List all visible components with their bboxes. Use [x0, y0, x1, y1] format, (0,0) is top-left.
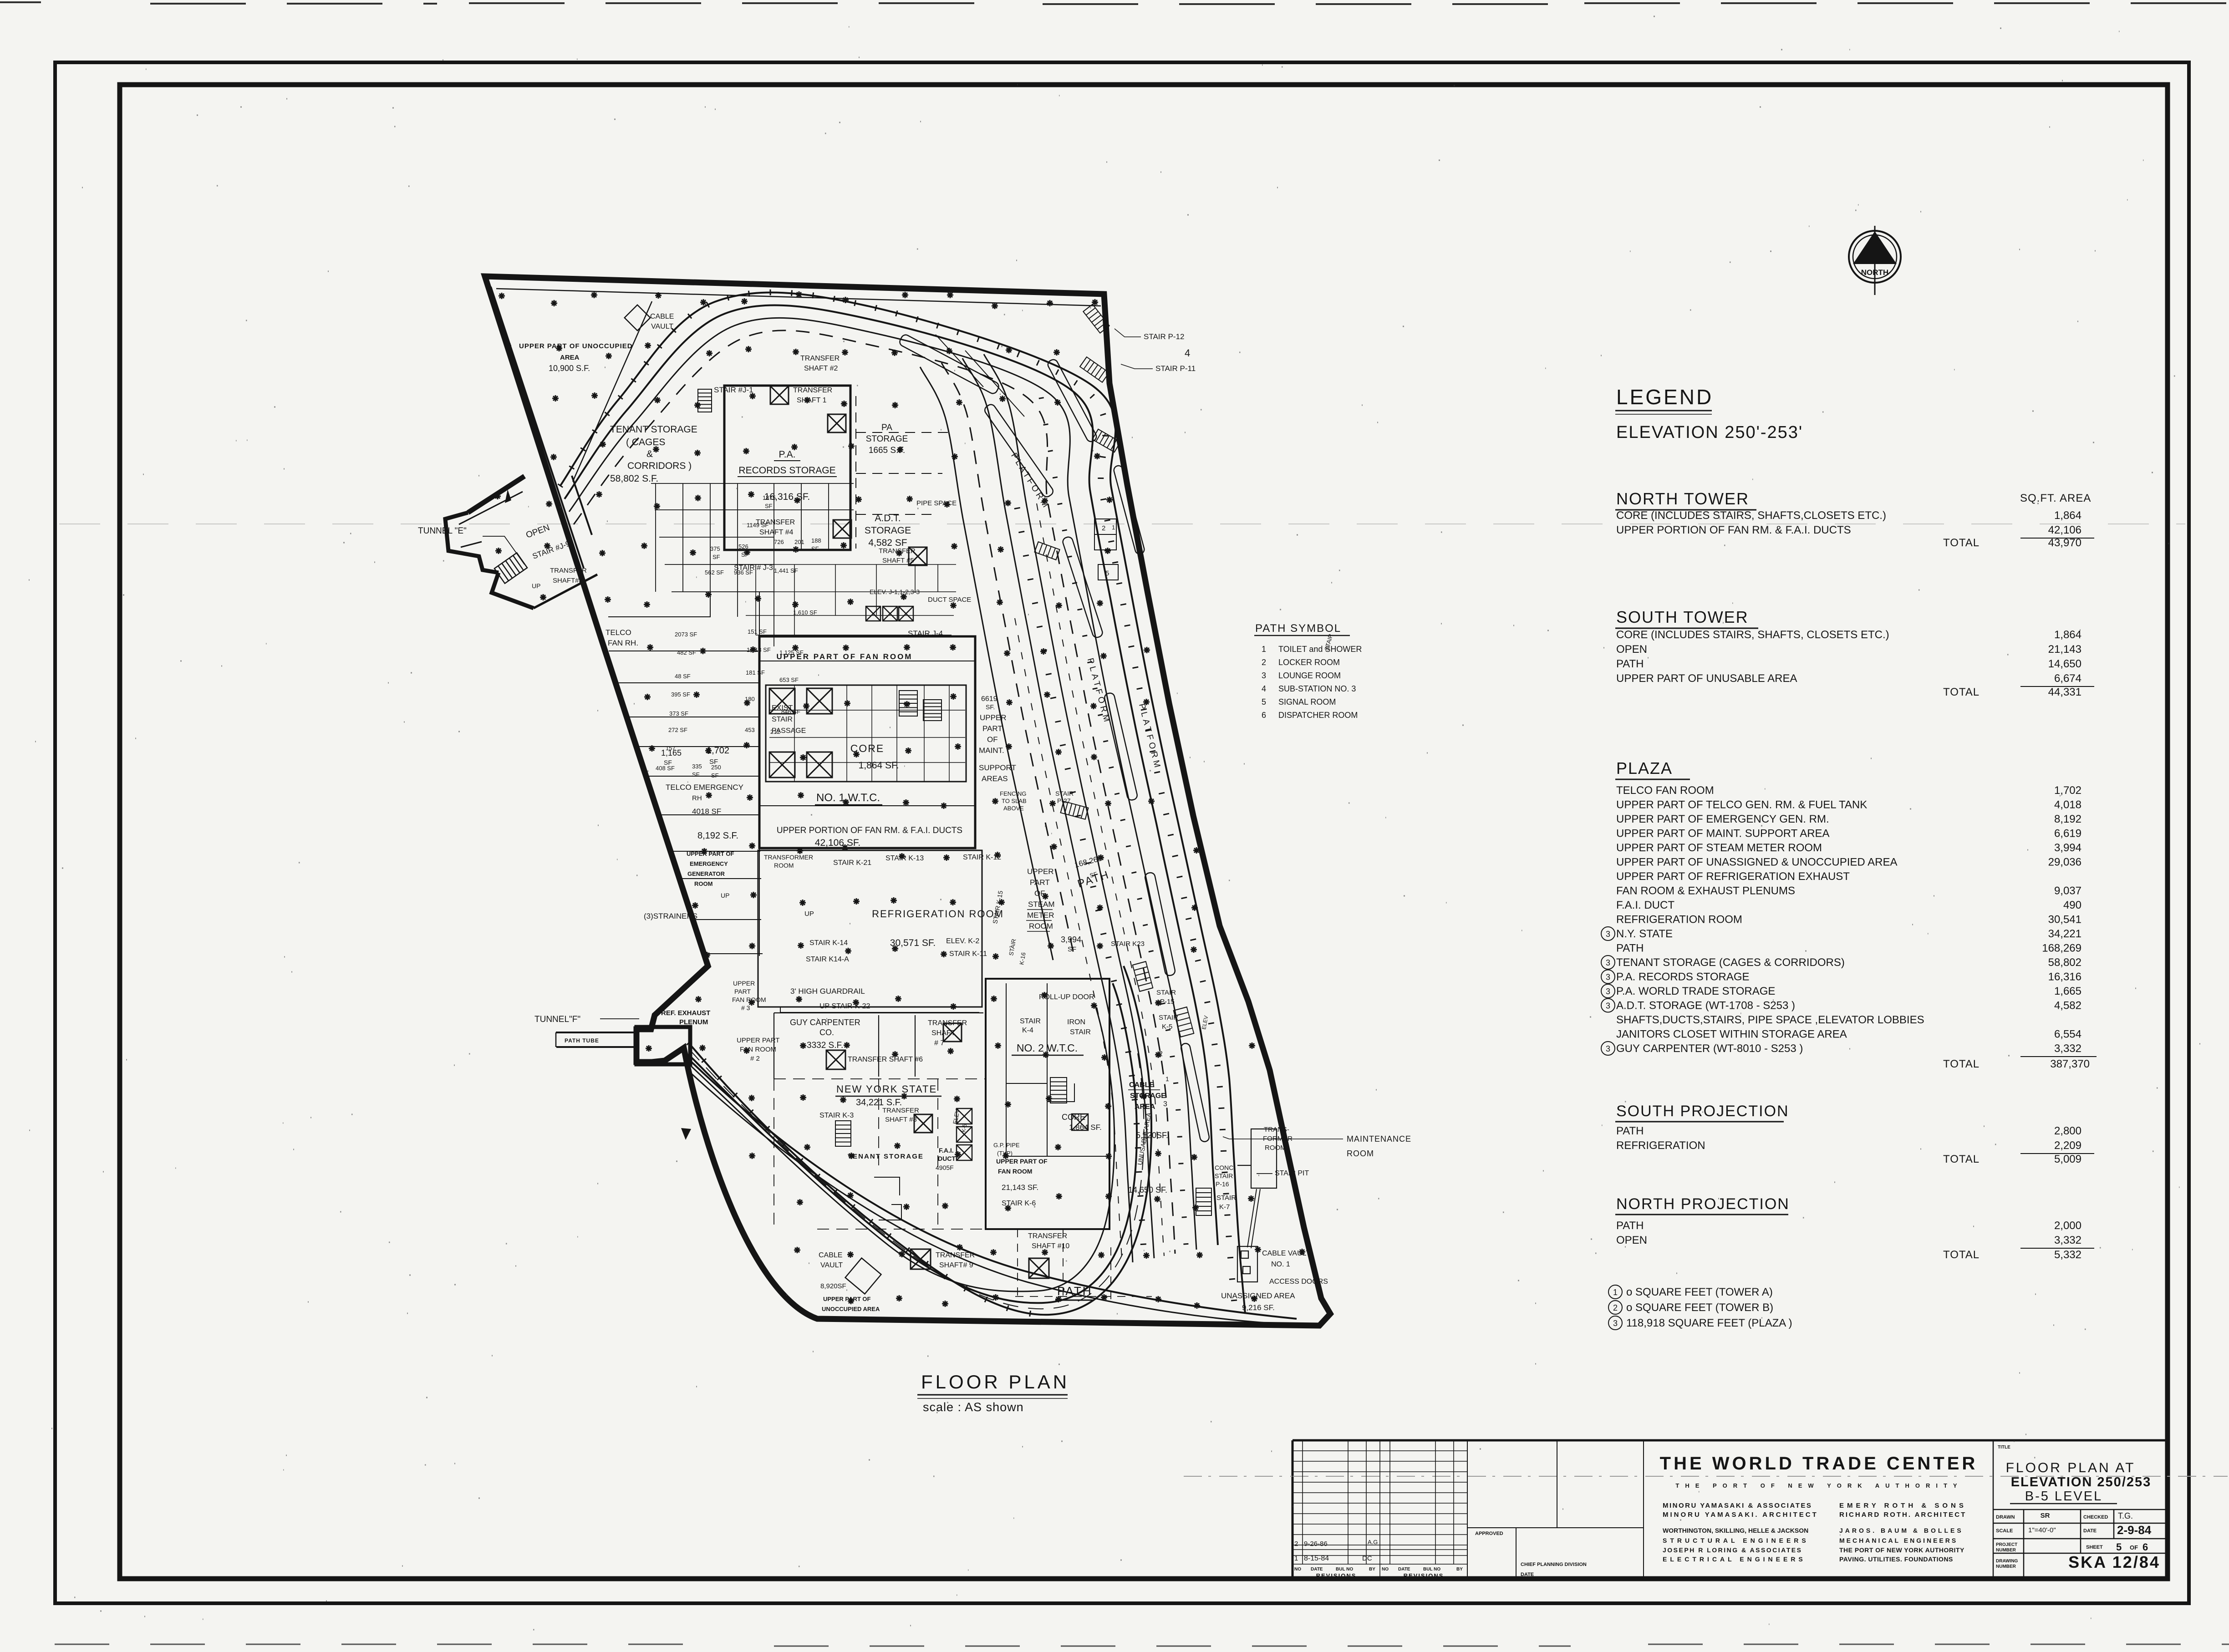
svg-text:MINORU YAMASAKI & ASSOCIATES: MINORU YAMASAKI & ASSOCIATES [1663, 1502, 1812, 1510]
svg-text:LEGEND: LEGEND [1616, 385, 1713, 409]
svg-text:THE WORLD TRADE CENTER: THE WORLD TRADE CENTER [1660, 1454, 1978, 1474]
svg-text:21,143: 21,143 [2048, 643, 2081, 656]
svg-text:726: 726 [774, 539, 784, 545]
svg-text:FAN RH.: FAN RH. [608, 639, 638, 647]
svg-text:K-4: K-4 [1022, 1027, 1033, 1034]
svg-text:TO SLAB: TO SLAB [1002, 798, 1027, 804]
svg-text:A.D.T.: A.D.T. [875, 513, 901, 524]
svg-text:1: 1 [1262, 645, 1266, 654]
svg-text:375: 375 [710, 545, 720, 552]
svg-text:PART: PART [734, 988, 751, 995]
svg-text:UPPER PART OF: UPPER PART OF [996, 1158, 1048, 1165]
svg-text:1: 1 [1613, 1288, 1618, 1297]
svg-text:118,918 SQUARE FEET (PLAZA: 118,918 SQUARE FEET (PLAZA ) [1626, 1317, 1792, 1329]
svg-text:6: 6 [1262, 711, 1266, 720]
svg-text:TENANT STORAGE: TENANT STORAGE [610, 424, 697, 435]
svg-text:3' HIGH GUARDRAIL: 3' HIGH GUARDRAIL [790, 987, 865, 996]
svg-text:K-5: K-5 [1162, 1023, 1172, 1031]
svg-text:1,702: 1,702 [2054, 784, 2081, 797]
svg-text:3: 3 [1613, 1319, 1618, 1328]
svg-text:SF: SF [1068, 945, 1076, 953]
svg-text:250: 250 [711, 764, 721, 771]
svg-text:10,900 S.F.: 10,900 S.F. [549, 364, 590, 373]
svg-text:SF: SF [711, 772, 719, 779]
svg-text:ABOVE: ABOVE [1003, 805, 1024, 812]
svg-text:8,192 S.F.: 8,192 S.F. [697, 831, 738, 841]
svg-text:N.Y. STATE: N.Y. STATE [1616, 928, 1673, 940]
svg-text:NORTH PROJECTION: NORTH PROJECTION [1616, 1195, 1790, 1213]
svg-text:1: 1 [1165, 1075, 1169, 1083]
svg-text:DATE: DATE [1398, 1567, 1410, 1572]
svg-text:SHAFT#3: SHAFT#3 [553, 577, 583, 585]
svg-text:&: & [646, 449, 653, 459]
svg-text:REVISIONS: REVISIONS [1316, 1572, 1357, 1579]
svg-text:SF: SF [811, 545, 819, 552]
svg-text:P-27: P-27 [1057, 797, 1071, 804]
svg-text:# 3: # 3 [741, 1004, 750, 1012]
svg-text:ROOM: ROOM [774, 862, 794, 869]
svg-text:14,650: 14,650 [2048, 658, 2081, 670]
svg-text:TOTAL: TOTAL [1943, 1058, 1980, 1070]
svg-text:MAINTENANCE: MAINTENANCE [1347, 1134, 1411, 1144]
svg-text:P.A. WORLD TRADE STORAGE: P.A. WORLD TRADE STORAGE [1616, 985, 1775, 997]
svg-text:STAIR: STAIR [1215, 1172, 1233, 1179]
svg-text:6,619: 6,619 [2054, 828, 2081, 840]
svg-text:METER: METER [1027, 911, 1054, 920]
svg-text:PROJECT: PROJECT [1996, 1542, 2017, 1547]
svg-text:RH: RH [692, 794, 702, 802]
svg-text:3: 3 [1606, 1044, 1610, 1053]
svg-text:CO.: CO. [819, 1028, 834, 1037]
svg-text:STAIR: STAIR [1008, 938, 1017, 956]
svg-text:4018 SF: 4018 SF [692, 807, 721, 816]
svg-text:NO: NO [1294, 1567, 1301, 1572]
svg-text:PATH: PATH [1616, 658, 1644, 670]
svg-text:AREA: AREA [1135, 1103, 1155, 1111]
svg-text:SHAFT #10: SHAFT #10 [1032, 1242, 1069, 1250]
svg-text:NEW YORK STATE: NEW YORK STATE [836, 1083, 937, 1095]
svg-text:8-15-84: 8-15-84 [1304, 1555, 1329, 1562]
svg-text:T.G.: T.G. [2118, 1511, 2133, 1520]
svg-text:ROOM: ROOM [694, 880, 712, 887]
svg-text:UPPER PORTION OF FAN RM. & F.A: UPPER PORTION OF FAN RM. & F.A.I. DUCTS [777, 826, 962, 835]
svg-text:5,332: 5,332 [2054, 1249, 2081, 1261]
svg-text:PATH: PATH [1057, 1284, 1092, 1298]
svg-text:MAINT.: MAINT. [979, 746, 1004, 755]
svg-text:PATH: PATH [1616, 1125, 1644, 1137]
svg-text:SHAFT #8: SHAFT #8 [885, 1116, 917, 1123]
svg-text:21,143 SF.: 21,143 SF. [1002, 1183, 1038, 1192]
svg-text:4,582 SF: 4,582 SF [868, 538, 907, 548]
svg-text:UPPER PART OF TELCO GEN.: UPPER PART OF TELCO GEN. RM. & FUEL TANK [1616, 799, 1867, 811]
svg-text:BY: BY [1456, 1567, 1463, 1572]
svg-text:PIPE SPACE: PIPE SPACE [916, 499, 957, 507]
svg-text:SQ.FT. AREA: SQ.FT. AREA [2020, 492, 2091, 504]
svg-text:STAIR: STAIR [772, 716, 793, 723]
svg-text:5: 5 [1105, 569, 1109, 577]
svg-text:1,610 SF: 1,610 SF [793, 609, 817, 616]
svg-text:ELEV. J-1,1-2,3-3: ELEV. J-1,1-2,3-3 [870, 588, 920, 595]
svg-text:STAIR K-14: STAIR K-14 [809, 939, 848, 947]
svg-text:VAULT: VAULT [820, 1261, 843, 1269]
svg-text:STAIR: STAIR [1055, 790, 1074, 797]
svg-text:STAIR: STAIR [1156, 989, 1176, 996]
svg-text:BUL NO: BUL NO [1423, 1567, 1440, 1572]
svg-text:SIGNAL ROOM: SIGNAL ROOM [1278, 697, 1336, 707]
svg-text:REF. EXHAUST: REF. EXHAUST [661, 1009, 710, 1017]
svg-text:9,216 SF.: 9,216 SF. [1242, 1303, 1275, 1312]
svg-text:STAIR #J-9: STAIR #J-9 [531, 539, 571, 560]
svg-text:526: 526 [738, 543, 748, 550]
svg-text:3: 3 [1163, 1100, 1167, 1108]
svg-text:PART: PART [982, 724, 1003, 733]
svg-text:UNOCCUPIED AREA: UNOCCUPIED AREA [822, 1306, 880, 1312]
svg-text:OPEN: OPEN [1616, 643, 1647, 656]
svg-text:BUL NO: BUL NO [1336, 1567, 1353, 1572]
svg-text:CABLE: CABLE [1129, 1081, 1154, 1089]
svg-text:A.G: A.G [1368, 1539, 1378, 1545]
svg-text:STAIR P-11: STAIR P-11 [1155, 364, 1196, 373]
svg-text:490: 490 [2063, 899, 2081, 911]
svg-text:UP: UP [721, 892, 729, 899]
svg-text:29,036: 29,036 [2048, 856, 2081, 869]
svg-text:DUCT SPACE: DUCT SPACE [928, 596, 971, 604]
svg-text:P.A.: P.A. [779, 449, 796, 460]
svg-text:DATE: DATE [1521, 1572, 1534, 1577]
svg-text:PATH: PATH [1616, 1220, 1644, 1232]
svg-text:3,332: 3,332 [2054, 1234, 2081, 1246]
svg-text:3332 S.F.: 3332 S.F. [807, 1041, 843, 1050]
svg-text:JOSEPH R LORING & ASSOCIATES: JOSEPH R LORING & ASSOCIATES [1663, 1546, 1802, 1554]
svg-text:NORTH TOWER: NORTH TOWER [1616, 489, 1749, 508]
svg-text:408 SF: 408 SF [656, 765, 675, 772]
svg-text:P.A. RECORDS STORAGE: P.A. RECORDS STORAGE [1616, 971, 1750, 983]
svg-text:GUY CARPENTER: GUY CARPENTER [790, 1018, 860, 1027]
svg-text:1: 1 [1294, 1555, 1298, 1562]
svg-text:STAIR #J-1: STAIR #J-1 [714, 386, 753, 394]
svg-text:STAIR K-21: STAIR K-21 [833, 859, 871, 867]
svg-text:3: 3 [1606, 930, 1610, 939]
svg-text:STAIR K-3: STAIR K-3 [819, 1112, 854, 1119]
svg-text:6,554: 6,554 [2054, 1028, 2081, 1041]
svg-text:1"=40'-0": 1"=40'-0" [2028, 1526, 2056, 1534]
svg-text:FLOOR PLAN: FLOOR PLAN [921, 1371, 1069, 1393]
svg-text:PATH SYMBOL: PATH SYMBOL [1255, 622, 1341, 635]
svg-text:4905F: 4905F [936, 1164, 954, 1171]
svg-text:OF: OF [2130, 1544, 2138, 1551]
svg-text:3: 3 [1262, 671, 1266, 680]
svg-text:A.D.T. STORAGE (WT-1708 - S: A.D.T. STORAGE (WT-1708 - S253 ) [1616, 1000, 1795, 1012]
svg-text:TRANSFER: TRANSFER [1028, 1232, 1067, 1240]
svg-text:UPPER PART OF STEAM METER: UPPER PART OF STEAM METER ROOM [1616, 842, 1822, 854]
svg-text:201: 201 [794, 539, 804, 545]
svg-text:44,331: 44,331 [2048, 686, 2081, 698]
svg-text:2,209: 2,209 [2054, 1139, 2081, 1152]
svg-text:REFRIGERATION ROOM: REFRIGERATION ROOM [1616, 914, 1742, 926]
svg-text:NO: NO [1382, 1567, 1389, 1572]
svg-text:6,674: 6,674 [2054, 672, 2081, 685]
svg-text:o SQUARE FEET (TOWER B): o SQUARE FEET (TOWER B) [1626, 1301, 1773, 1314]
svg-text:NUMBER: NUMBER [1996, 1548, 2016, 1553]
svg-text:272 SF: 272 SF [668, 727, 687, 733]
svg-text:3: 3 [1606, 958, 1610, 967]
svg-text:5: 5 [2116, 1541, 2122, 1553]
svg-text:4,582: 4,582 [2054, 1000, 2081, 1012]
svg-text:ACCESS DOORS: ACCESS DOORS [1269, 1278, 1328, 1286]
svg-text:EMERY ROTH & SONS: EMERY ROTH & SONS [1839, 1502, 1967, 1510]
svg-text:4,018: 4,018 [2054, 799, 2081, 811]
svg-text:562 SF: 562 SF [705, 569, 724, 576]
svg-text:UPPER PART OF UNUSABLE ARE: UPPER PART OF UNUSABLE AREA [1616, 672, 1797, 685]
svg-text:FENCING: FENCING [1000, 790, 1027, 797]
svg-text:9,037: 9,037 [2054, 885, 2081, 897]
svg-text:STAIR J-4: STAIR J-4 [908, 629, 943, 638]
svg-text:42,106: 42,106 [2048, 524, 2081, 536]
svg-text:16,316: 16,316 [2048, 971, 2081, 983]
svg-text:o SQUARE FEET (TOWER A): o SQUARE FEET (TOWER A) [1626, 1286, 1773, 1298]
svg-text:1,864: 1,864 [2054, 509, 2081, 522]
svg-text:1875: 1875 [763, 494, 776, 501]
svg-text:CHECKED: CHECKED [2083, 1515, 2108, 1520]
svg-text:NORTH: NORTH [1861, 268, 1888, 277]
svg-text:THE PORT OF NEW YORK AUTHORITY: THE PORT OF NEW YORK AUTHORITY [1675, 1482, 1963, 1489]
svg-text:LOCKER ROOM: LOCKER ROOM [1278, 658, 1340, 667]
svg-text:UPPER PART OF UNOCCUPIED: UPPER PART OF UNOCCUPIED [519, 342, 633, 350]
svg-text:NUMBER: NUMBER [1996, 1564, 2016, 1569]
svg-text:PATH: PATH [1616, 942, 1644, 955]
svg-text:FLOOR PLAN AT: FLOOR PLAN AT [2006, 1460, 2136, 1475]
svg-text:SR: SR [2041, 1512, 2050, 1520]
svg-text:PATH TUBE: PATH TUBE [565, 1037, 599, 1044]
svg-text:UPPER: UPPER [733, 980, 755, 987]
svg-text:CORRIDORS ): CORRIDORS ) [627, 461, 692, 471]
svg-text:CORE (INCLUDES STAIRS, SHAF: CORE (INCLUDES STAIRS, SHAFTS,CLOSETS ET… [1616, 509, 1886, 522]
svg-text:9-26-86: 9-26-86 [1304, 1540, 1328, 1548]
svg-text:MECHANICAL ENGINEERS: MECHANICAL ENGINEERS [1839, 1537, 1958, 1544]
svg-text:5: 5 [1262, 697, 1266, 707]
svg-text:ROOM: ROOM [1347, 1149, 1374, 1158]
svg-text:TRANSFER: TRANSFER [550, 567, 587, 574]
svg-text:UPPER: UPPER [980, 713, 1007, 722]
svg-text:SHAFT 1: SHAFT 1 [797, 396, 827, 404]
svg-text:6: 6 [2142, 1541, 2148, 1553]
svg-text:TELCO FAN ROOM: TELCO FAN ROOM [1616, 784, 1714, 797]
svg-text:TRANSFER: TRANSFER [756, 518, 795, 526]
svg-text:ROOM: ROOM [1029, 922, 1053, 930]
svg-text:STAIR: STAIR [1216, 1194, 1236, 1202]
svg-text:168,269: 168,269 [2042, 942, 2081, 955]
svg-text:DUCT: DUCT [938, 1155, 956, 1162]
svg-text:1,125 SF: 1,125 SF [779, 649, 804, 656]
svg-text:ROOM: ROOM [1265, 1144, 1286, 1152]
svg-text:DC: DC [1362, 1555, 1372, 1562]
svg-text:SHAFT #4: SHAFT #4 [759, 529, 794, 536]
svg-text:48 SF: 48 SF [675, 673, 691, 680]
svg-text:4: 4 [1262, 684, 1266, 693]
svg-text:TUNNEL"F": TUNNEL"F" [534, 1015, 580, 1024]
svg-text:# 2: # 2 [750, 1055, 760, 1062]
svg-text:STAIR P-12: STAIR P-12 [1144, 332, 1184, 341]
svg-text:JAROS. BAUM & BOLLES: JAROS. BAUM & BOLLES [1839, 1527, 1964, 1534]
svg-text:TELCO: TELCO [606, 628, 631, 637]
svg-text:2: 2 [1262, 658, 1266, 667]
svg-text:STAIR K-11: STAIR K-11 [949, 950, 987, 958]
svg-text:UP: UP [532, 582, 540, 590]
svg-text:UPPER PART OF MAINT. SUPP: UPPER PART OF MAINT. SUPPORT AREA [1616, 828, 1830, 840]
svg-text:B-5 LEVEL: B-5 LEVEL [2025, 1489, 2102, 1504]
svg-text:TOILET and SHOWER: TOILET and SHOWER [1278, 645, 1362, 654]
svg-text:JANITORS CLOSET WITHIN STOR: JANITORS CLOSET WITHIN STORAGE AREA [1616, 1028, 1847, 1041]
svg-text:453: 453 [745, 727, 755, 733]
svg-text:4: 4 [1185, 347, 1190, 359]
svg-text:RECORDS STORAGE: RECORDS STORAGE [738, 465, 835, 476]
svg-text:STAIR K14-A: STAIR K14-A [806, 956, 849, 963]
svg-text:34,221: 34,221 [2048, 928, 2081, 940]
svg-text:CHIEF PLANNING DIVISION: CHIEF PLANNING DIVISION [1521, 1562, 1587, 1567]
svg-text:CABLE: CABLE [650, 313, 674, 320]
svg-text:AREA: AREA [560, 354, 580, 361]
svg-text:TRANSFER SHAFT #6: TRANSFER SHAFT #6 [848, 1056, 923, 1063]
svg-text:TENANT STORAGE (CAGES & C: TENANT STORAGE (CAGES & CORRIDORS) [1616, 956, 1845, 969]
svg-text:TELCO EMERGENCY: TELCO EMERGENCY [666, 783, 743, 792]
svg-text:UPPER PORTION OF FAN RM.: UPPER PORTION OF FAN RM. & F.A.I. DUCTS [1616, 524, 1851, 536]
svg-text:VAULT: VAULT [651, 323, 673, 330]
svg-text:58,802 S.F.: 58,802 S.F. [610, 473, 658, 484]
svg-text:DRAWING: DRAWING [1996, 1559, 2018, 1564]
svg-text:2-9-84: 2-9-84 [2117, 1523, 2152, 1537]
svg-text:SHAFTS,DUCTS,STAIRS, PIPE SP: SHAFTS,DUCTS,STAIRS, PIPE SPACE ,ELEVATO… [1616, 1014, 1924, 1026]
svg-text:846 SF: 846 SF [781, 708, 800, 715]
svg-text:REFRIGERATION ROOM: REFRIGERATION ROOM [872, 908, 1004, 920]
svg-text:SOUTH TOWER: SOUTH TOWER [1616, 608, 1749, 626]
svg-text:BY: BY [1369, 1567, 1375, 1572]
svg-text:3,332: 3,332 [2054, 1042, 2081, 1055]
svg-text:ELEVATION 250/253: ELEVATION 250/253 [2011, 1475, 2152, 1489]
svg-text:5,009: 5,009 [2054, 1153, 2081, 1165]
svg-text:482 SF: 482 SF [677, 649, 696, 656]
svg-text:TRANSFER: TRANSFER [800, 355, 840, 362]
svg-text:387,370: 387,370 [2050, 1058, 2090, 1070]
svg-text:UP: UP [804, 910, 814, 918]
svg-text:SF: SF [692, 771, 700, 778]
svg-text:STAIR PIT: STAIR PIT [1275, 1169, 1309, 1177]
svg-text:APPROVED: APPROVED [1475, 1531, 1503, 1536]
svg-text:188: 188 [811, 537, 821, 544]
svg-text:PAVING. UTILITIES. FOUNDATIONS: PAVING. UTILITIES. FOUNDATIONS [1839, 1555, 1953, 1563]
svg-text:395 SF: 395 SF [671, 691, 690, 698]
svg-text:8,920SF: 8,920SF [820, 1282, 846, 1290]
svg-text:ELEVATION 250'-253': ELEVATION 250'-253' [1616, 423, 1803, 442]
svg-text:212: 212 [770, 728, 780, 735]
svg-text:2: 2 [1102, 524, 1105, 532]
svg-text:THE PORT OF NEW YORK AUTHORITY: THE PORT OF NEW YORK AUTHORITY [1839, 1546, 1964, 1554]
svg-text:58,802: 58,802 [2048, 956, 2081, 969]
svg-text:TRANSFER: TRANSFER [936, 1251, 975, 1259]
svg-text:PA: PA [881, 423, 892, 432]
svg-text:DATE: DATE [1311, 1567, 1323, 1572]
svg-text:STAIR: STAIR [1070, 1028, 1091, 1036]
svg-text:LOUNGE ROOM: LOUNGE ROOM [1278, 671, 1341, 680]
svg-text:NO. 1: NO. 1 [1271, 1261, 1290, 1268]
svg-text:CONC: CONC [1215, 1164, 1233, 1171]
svg-text:SUB-STATION NO. 3: SUB-STATION NO. 3 [1278, 684, 1356, 693]
svg-text:1,665: 1,665 [2054, 985, 2081, 997]
svg-text:UPPER PART: UPPER PART [737, 1037, 779, 1044]
svg-text:3: 3 [1606, 1001, 1610, 1011]
svg-text:2,800: 2,800 [2054, 1125, 2081, 1137]
svg-text:373 SF: 373 SF [669, 710, 688, 717]
svg-text:scale : AS shown: scale : AS shown [923, 1400, 1024, 1414]
svg-text:DATE: DATE [2083, 1528, 2097, 1534]
svg-text:P-16: P-16 [1216, 1180, 1229, 1188]
svg-text:1,864 SF.: 1,864 SF. [859, 760, 899, 771]
svg-text:TOTAL: TOTAL [1943, 1249, 1980, 1261]
svg-text:TRANSFORMER: TRANSFORMER [764, 854, 813, 861]
svg-text:PLAZA: PLAZA [1616, 759, 1673, 778]
svg-text:UPPER PART OF: UPPER PART OF [687, 850, 734, 857]
svg-text:PART: PART [1030, 878, 1050, 887]
svg-text:STORAGE: STORAGE [865, 525, 911, 536]
svg-text:WORTHINGTON, SKILLING, HELLE &: WORTHINGTON, SKILLING, HELLE & JACKSON [1663, 1527, 1808, 1534]
svg-text:3,994: 3,994 [1061, 935, 1081, 944]
svg-text:SF.: SF. [986, 703, 995, 711]
svg-text:( CAGES: ( CAGES [626, 437, 665, 447]
svg-text:IRON: IRON [1067, 1018, 1085, 1026]
svg-text:TOTAL: TOTAL [1943, 1153, 1980, 1165]
svg-text:8,192: 8,192 [2054, 813, 2081, 825]
svg-text:2: 2 [1613, 1303, 1618, 1312]
svg-text:TENANT STORAGE: TENANT STORAGE [848, 1153, 924, 1160]
svg-text:STAIR K23: STAIR K23 [1111, 940, 1145, 948]
svg-text:2073 SF: 2073 SF [675, 631, 697, 638]
svg-text:SCALE: SCALE [1996, 1528, 2013, 1534]
svg-text:MINORU YAMASAKI. ARCHITECT: MINORU YAMASAKI. ARCHITECT [1663, 1511, 1818, 1519]
svg-text:FAN ROOM & EXHAUST PLENUMS: FAN ROOM & EXHAUST PLENUMS [1616, 885, 1795, 897]
svg-text:SHEET: SHEET [2086, 1545, 2103, 1550]
svg-text:(3)STRAINERS: (3)STRAINERS [644, 912, 697, 920]
svg-text:42,106 SF.: 42,106 SF. [815, 838, 860, 848]
svg-text:EMERGENCY: EMERGENCY [690, 860, 728, 867]
svg-text:2: 2 [1294, 1540, 1298, 1548]
svg-text:UPPER PART OF EMERGENCY G: UPPER PART OF EMERGENCY GEN. RM. [1616, 813, 1829, 825]
svg-text:3: 3 [1606, 973, 1610, 982]
svg-text:SKA 12/84: SKA 12/84 [2068, 1553, 2160, 1571]
svg-text:ELEV. K-2: ELEV. K-2 [946, 937, 979, 945]
svg-text:STORAGE: STORAGE [866, 434, 908, 444]
svg-text:DISPATCHER ROOM: DISPATCHER ROOM [1278, 711, 1358, 720]
svg-text:STAIR: STAIR [1020, 1017, 1041, 1025]
svg-text:SOUTH PROJECTION: SOUTH PROJECTION [1616, 1103, 1789, 1120]
svg-text:STRUCTURAL ENGINEERS: STRUCTURAL ENGINEERS [1663, 1537, 1809, 1544]
svg-text:F.A.I. DUCT: F.A.I. DUCT [1616, 899, 1674, 911]
svg-text:GENERATOR: GENERATOR [687, 870, 725, 877]
svg-text:STEAM: STEAM [1028, 900, 1055, 909]
svg-text:ELECTRICAL ENGINEERS: ELECTRICAL ENGINEERS [1663, 1555, 1806, 1563]
svg-text:UPPER PART OF REFRIGERATIO: UPPER PART OF REFRIGERATION EXHAUST [1616, 870, 1850, 883]
svg-text:653 SF: 653 SF [779, 676, 799, 683]
svg-text:K-7: K-7 [1219, 1203, 1230, 1211]
svg-text:DRAWN: DRAWN [1996, 1515, 2015, 1520]
svg-text:STAIR # J-3: STAIR # J-3 [734, 564, 773, 572]
svg-text:1,441 SF: 1,441 SF [774, 567, 798, 574]
svg-text:3: 3 [1606, 987, 1610, 996]
svg-text:2,000: 2,000 [2054, 1220, 2081, 1232]
svg-text:F.A.I.: F.A.I. [939, 1147, 954, 1154]
svg-text:SUPPORT: SUPPORT [979, 763, 1016, 772]
svg-text:PLENUM: PLENUM [679, 1018, 708, 1026]
svg-text:FAN ROOM: FAN ROOM [998, 1168, 1032, 1175]
svg-text:335: 335 [692, 763, 702, 770]
